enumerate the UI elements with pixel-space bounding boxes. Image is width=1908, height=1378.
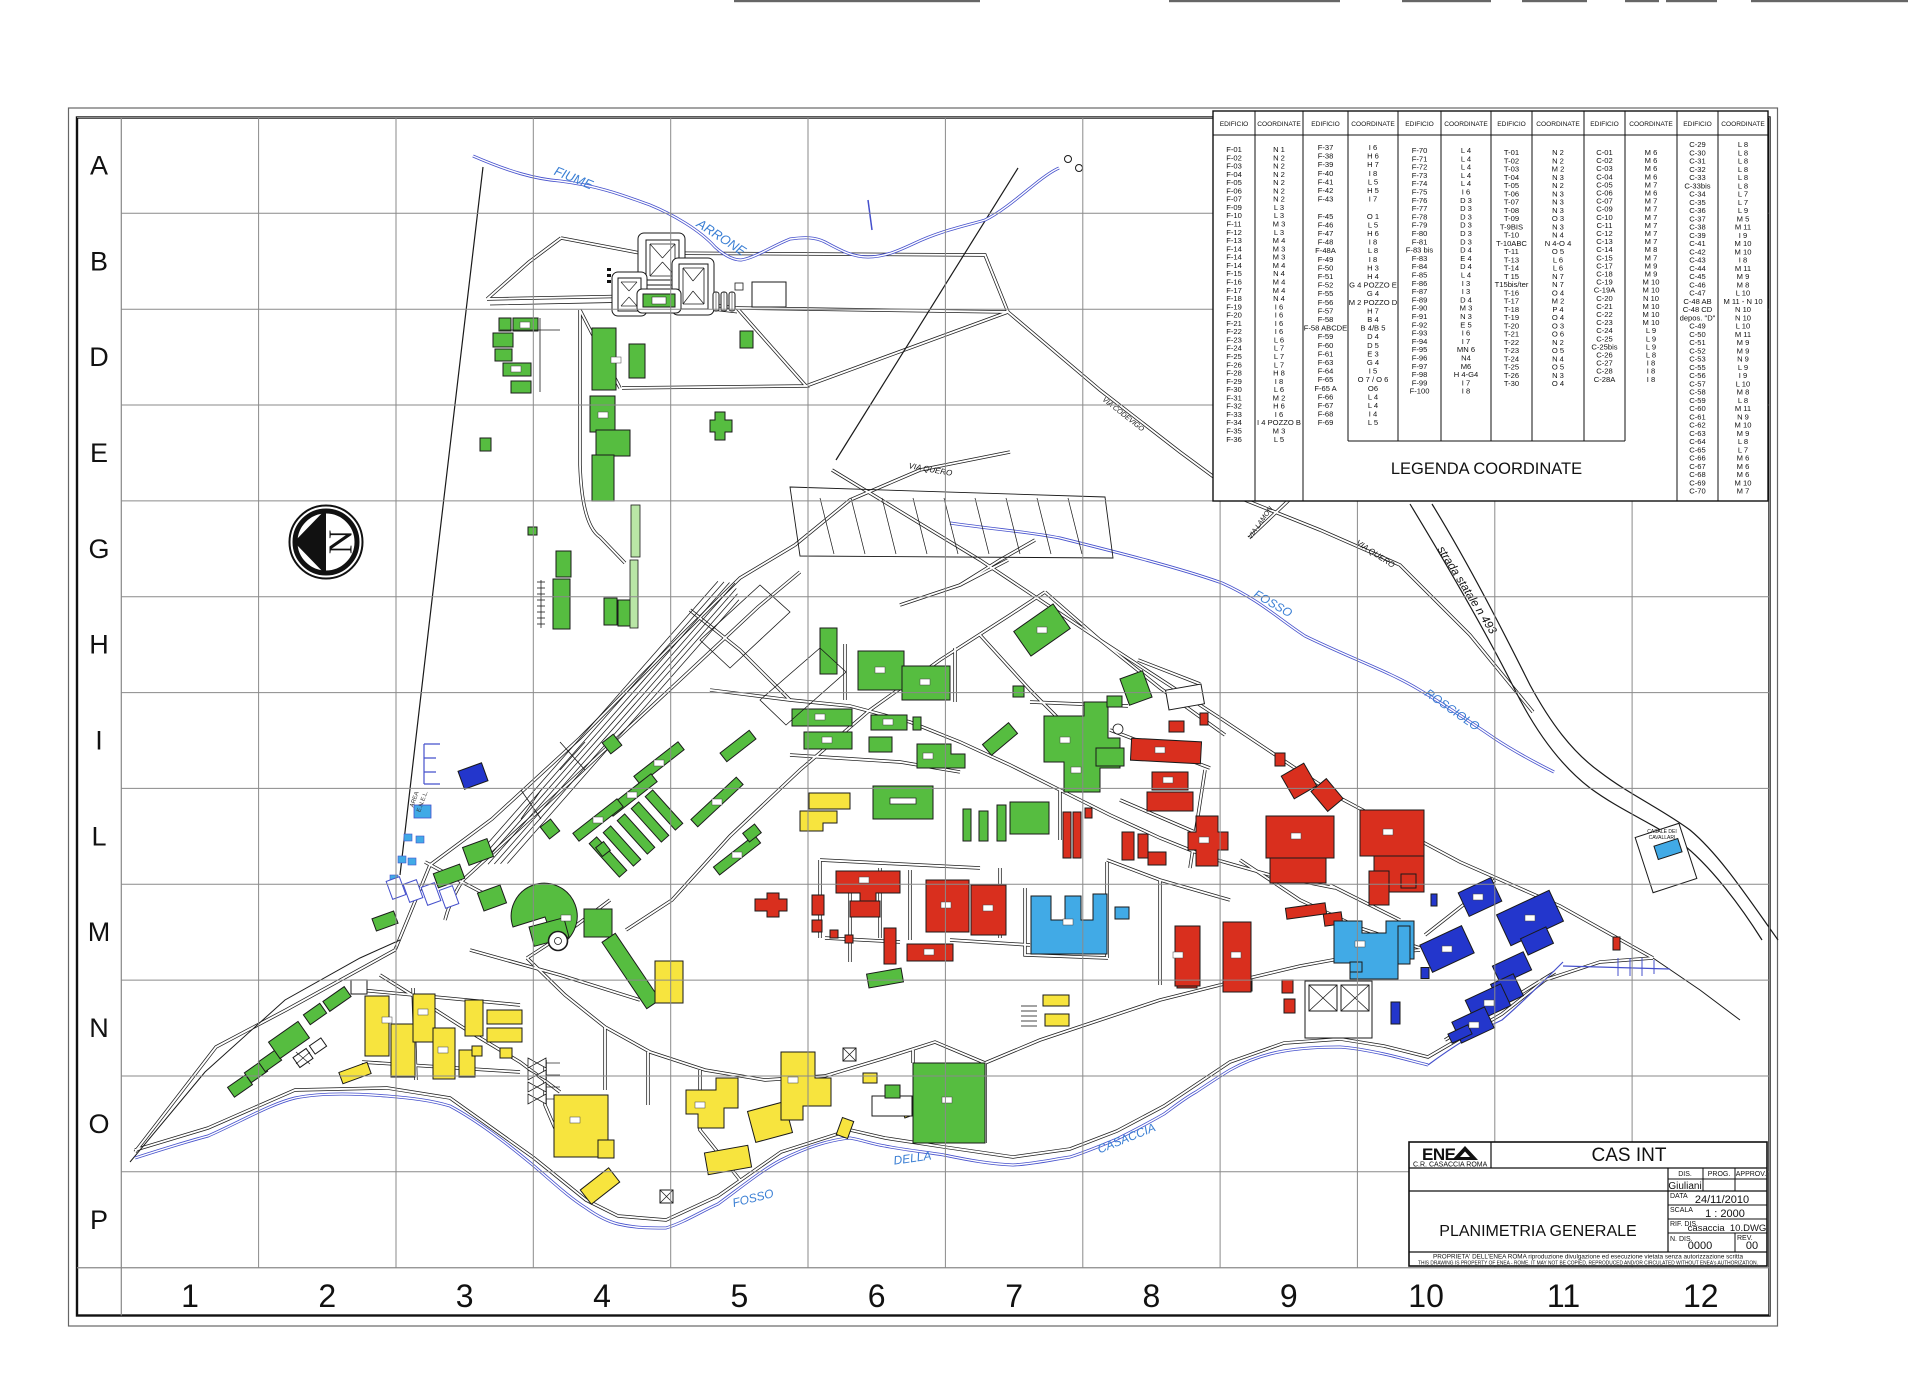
svg-text:11: 11 [1547, 1278, 1580, 1314]
svg-text:COORDINATE: COORDINATE [1721, 121, 1765, 128]
svg-text:SCALA: SCALA [1670, 1207, 1693, 1214]
svg-text:EDIFICIO: EDIFICIO [1220, 121, 1249, 128]
svg-text:G: G [88, 534, 109, 564]
svg-text:PROG.: PROG. [1708, 1171, 1731, 1178]
svg-text:DIS.: DIS. [1678, 1171, 1692, 1178]
svg-text:PLANIMETRIA GENERALE: PLANIMETRIA GENERALE [1439, 1223, 1636, 1240]
svg-text:COORDINATE: COORDINATE [1257, 121, 1301, 128]
svg-text:strada statale n 493: strada statale n 493 [1435, 544, 1499, 637]
svg-text:D: D [89, 342, 109, 372]
svg-text:8: 8 [1143, 1278, 1161, 1314]
svg-text:1: 1 [181, 1278, 199, 1314]
svg-text:4: 4 [593, 1278, 611, 1314]
svg-text:00: 00 [1746, 1240, 1758, 1252]
svg-text:DELLA: DELLA [893, 1148, 933, 1167]
svg-text:N: N [89, 1013, 109, 1043]
svg-text:VIA LAMON: VIA LAMON [1247, 505, 1275, 541]
svg-text:THIS DRAWING IS PROPERTY OF EN: THIS DRAWING IS PROPERTY OF ENEA - ROME.… [1418, 1261, 1758, 1267]
svg-text:12: 12 [1683, 1278, 1719, 1314]
svg-text:I: I [95, 726, 103, 756]
svg-text:VIA QUERO: VIA QUERO [1354, 538, 1396, 570]
svg-text:C.R. CASACCIA ROMA: C.R. CASACCIA ROMA [1413, 1162, 1488, 1169]
svg-text:casaccia_10.DWG: casaccia_10.DWG [1688, 1223, 1767, 1234]
svg-text:F-01F-02F-03F-04F-05F-06F-07F-: F-01F-02F-03F-04F-05F-06F-07F-09F-10F-11… [1226, 145, 1242, 444]
svg-text:CAVALLARI: CAVALLARI [1649, 835, 1676, 841]
svg-text:L: L [91, 821, 106, 851]
svg-text:E: E [90, 438, 108, 468]
svg-text:5: 5 [731, 1278, 749, 1314]
svg-text:H: H [89, 630, 109, 660]
svg-text:EDIFICIO: EDIFICIO [1497, 121, 1526, 128]
svg-text:O: O [88, 1109, 109, 1139]
svg-text:3: 3 [456, 1278, 474, 1314]
svg-text:COORDINATE: COORDINATE [1444, 121, 1488, 128]
svg-text:COORDINATE: COORDINATE [1536, 121, 1580, 128]
svg-text:P: P [90, 1205, 108, 1235]
svg-text:DATA: DATA [1670, 1193, 1688, 1200]
svg-text:EDIFICIO: EDIFICIO [1590, 121, 1619, 128]
svg-text:0000: 0000 [1688, 1240, 1712, 1252]
svg-text:N: N [323, 530, 360, 555]
svg-text:VIA CODEVIGO: VIA CODEVIGO [1101, 396, 1146, 433]
svg-text:7: 7 [1005, 1278, 1023, 1314]
svg-text:M: M [88, 917, 111, 947]
svg-text:EDIFICIO: EDIFICIO [1311, 121, 1340, 128]
svg-text:APPROV.: APPROV. [1736, 1171, 1767, 1178]
svg-text:FIUME: FIUME [552, 163, 595, 192]
svg-text:10: 10 [1408, 1278, 1444, 1314]
svg-text:2: 2 [318, 1278, 336, 1314]
svg-text:A: A [90, 150, 108, 180]
svg-text:EDIFICIO: EDIFICIO [1405, 121, 1434, 128]
svg-text:Giuliani: Giuliani [1668, 1181, 1701, 1192]
svg-text:CAS INT: CAS INT [1592, 1145, 1667, 1166]
svg-text:1 : 2000: 1 : 2000 [1705, 1208, 1745, 1220]
svg-text:24/11/2010: 24/11/2010 [1695, 1194, 1749, 1206]
svg-text:COORDINATE: COORDINATE [1629, 121, 1673, 128]
svg-text:LEGENDA COORDINATE: LEGENDA COORDINATE [1391, 460, 1582, 478]
svg-text:B: B [90, 246, 108, 276]
svg-text:EDIFICIO: EDIFICIO [1683, 121, 1712, 128]
svg-text:9: 9 [1280, 1278, 1298, 1314]
svg-text:COORDINATE: COORDINATE [1351, 121, 1395, 128]
svg-text:PROPRIETA' DELL'ENEA ROMA ripr: PROPRIETA' DELL'ENEA ROMA riproduzione d… [1433, 1254, 1743, 1261]
svg-text:6: 6 [868, 1278, 886, 1314]
